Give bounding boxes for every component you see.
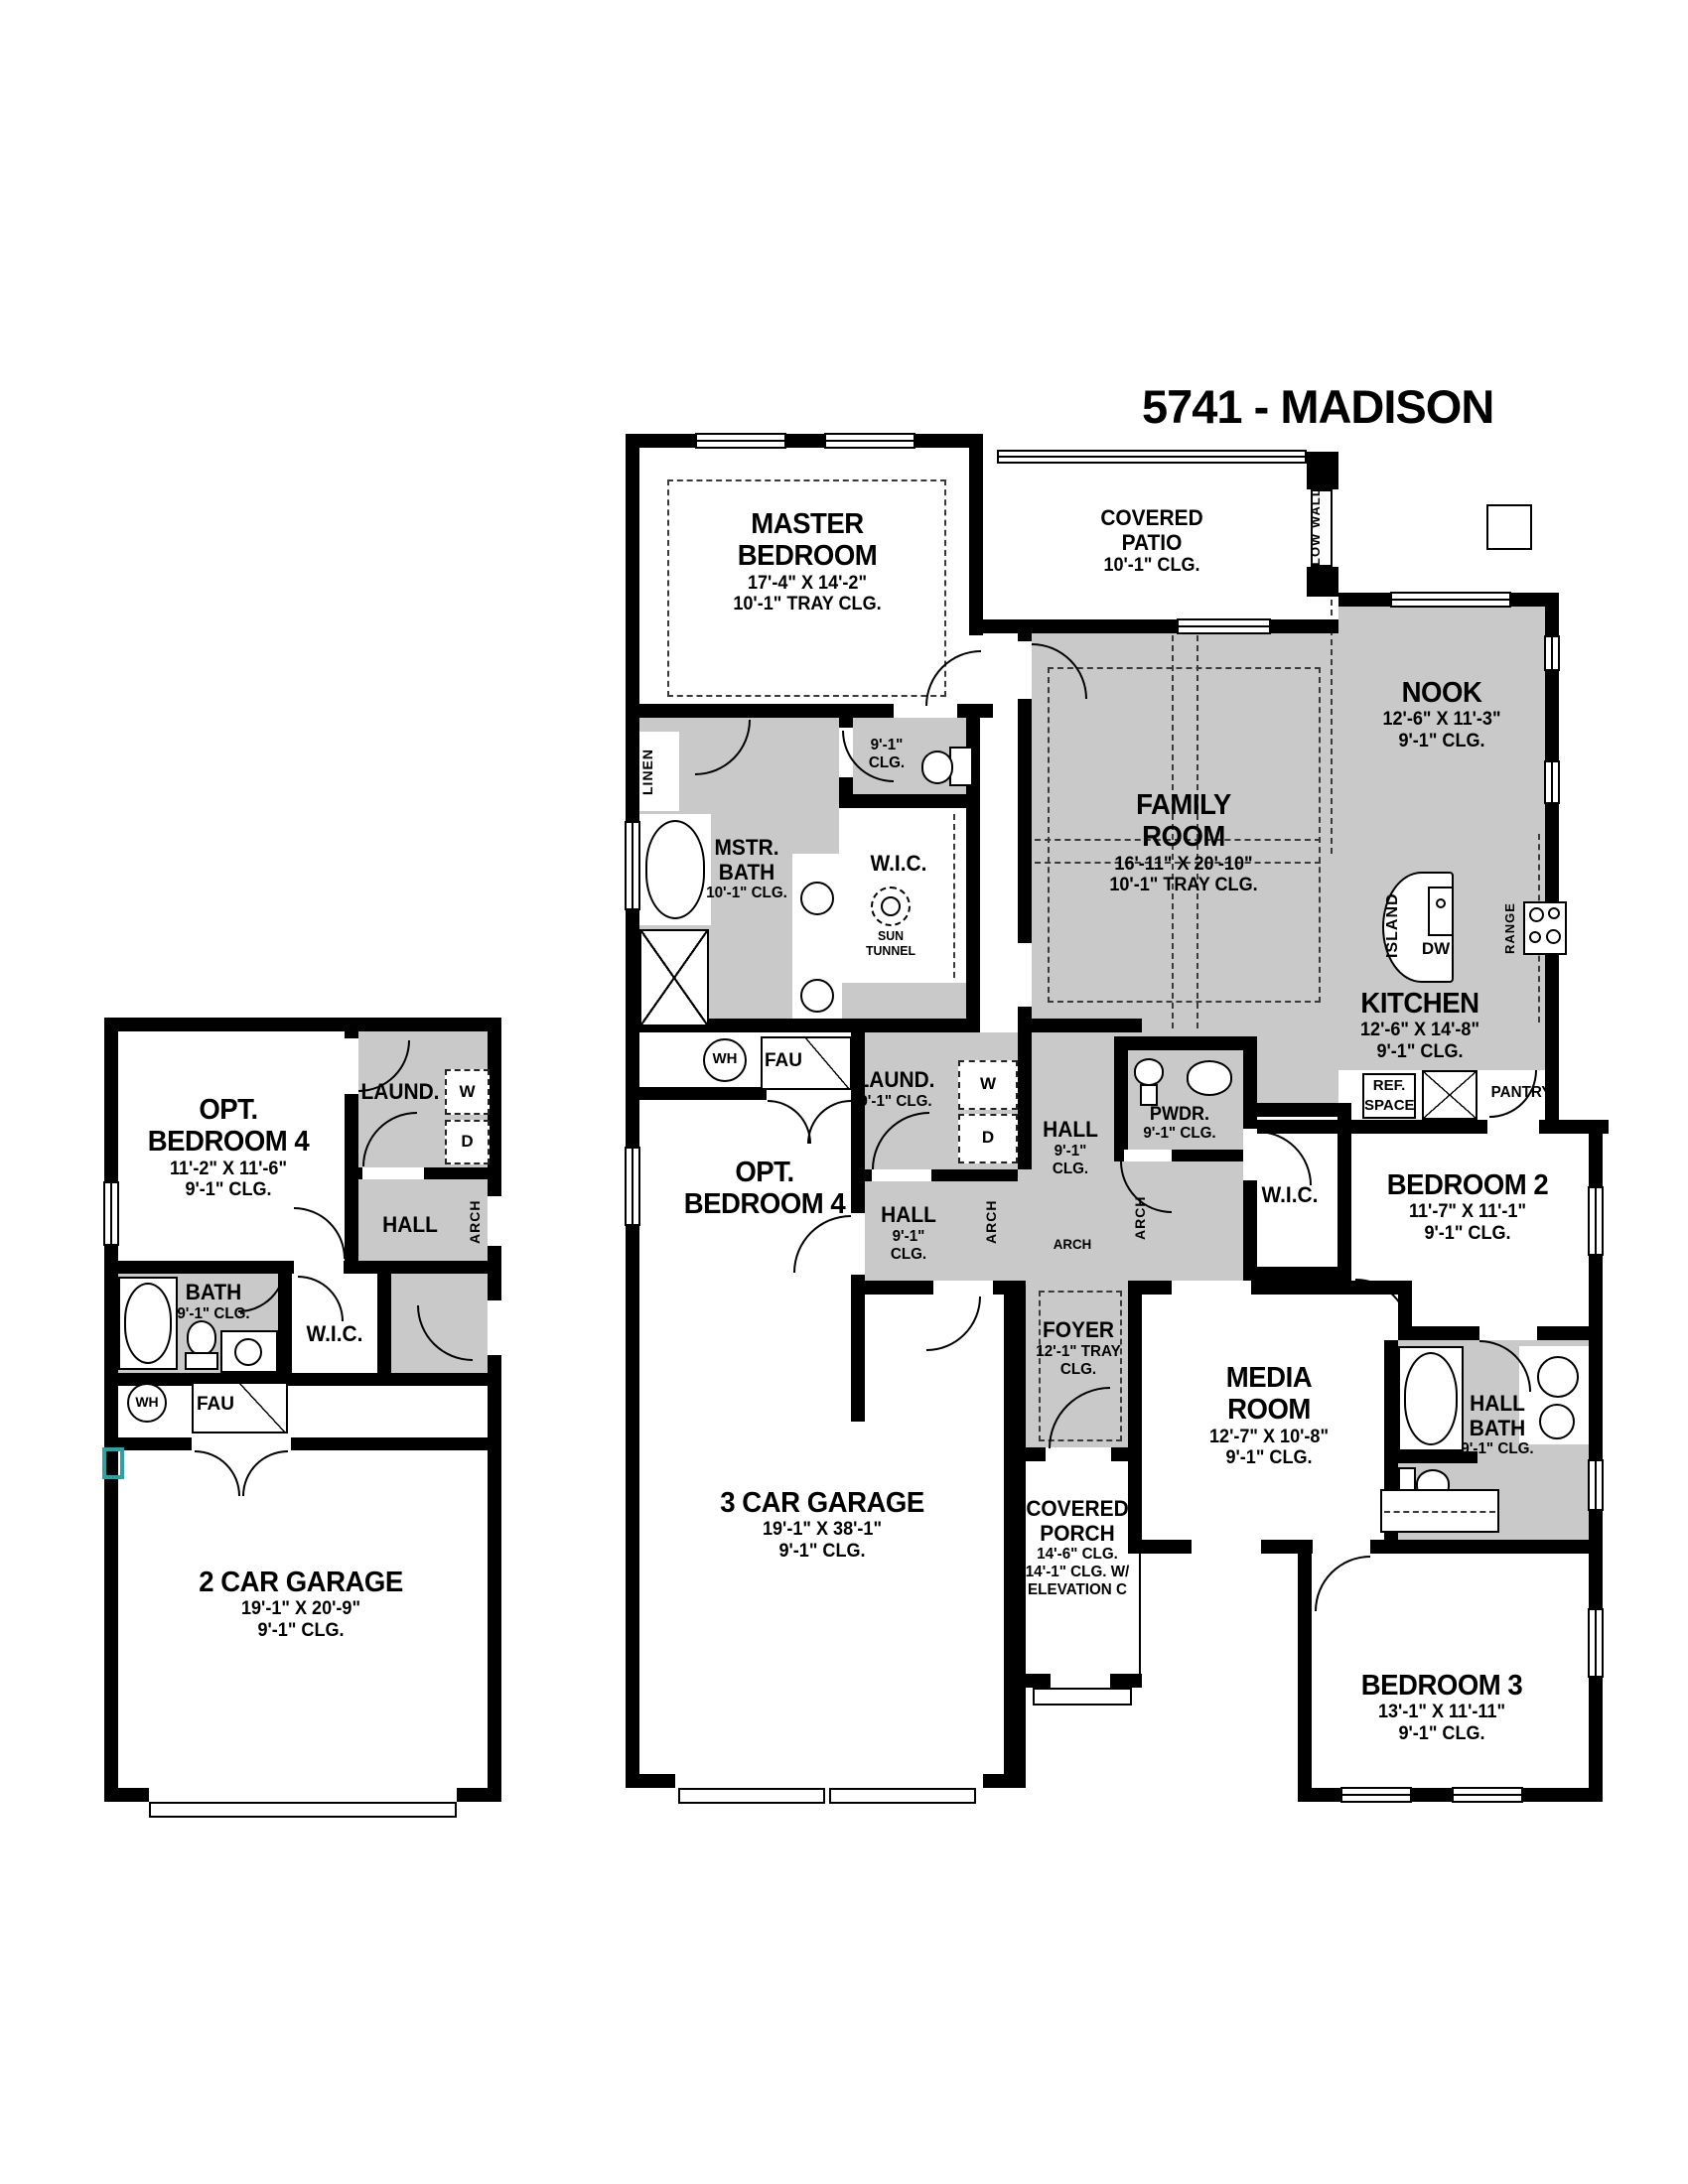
linen-label: LINEN — [639, 740, 655, 805]
door-arc — [195, 1450, 240, 1496]
window — [1588, 1608, 1604, 1678]
sink — [1537, 1356, 1579, 1398]
arch-opening — [488, 1196, 501, 1246]
door-arc — [793, 1215, 851, 1273]
wall — [1298, 1554, 1312, 1802]
pwdr-sink — [1187, 1060, 1232, 1096]
wall — [983, 619, 1338, 633]
wall — [104, 1373, 501, 1386]
bedroom2-label: BEDROOM 2 11'-7" X 11'-1"9'-1" CLG. — [1387, 1169, 1549, 1244]
wall — [104, 1018, 501, 1031]
wall — [626, 1087, 767, 1100]
door-opening — [1313, 1540, 1370, 1554]
garage-door-panel — [149, 1802, 457, 1818]
burner — [1548, 907, 1560, 919]
opt-bedroom4-label: OPT.BEDROOM 4 — [684, 1157, 846, 1221]
door-opening — [294, 1261, 344, 1274]
island-sink — [1428, 887, 1454, 936]
burner — [1546, 929, 1561, 944]
bedroom3-label: BEDROOM 3 13'-1" X 11'-11"9'-1" CLG. — [1361, 1670, 1523, 1744]
wall — [104, 1437, 501, 1450]
closet-shelf-line — [1384, 1511, 1495, 1513]
sun-tunnel-icon — [881, 896, 901, 916]
washer-label: W — [958, 1074, 1018, 1094]
left-wic-label: W.I.C. — [307, 1322, 363, 1347]
door-arc — [807, 1100, 851, 1144]
arch-label: ARCH — [1132, 1189, 1148, 1247]
door-opening — [1479, 1326, 1537, 1340]
window — [103, 1181, 119, 1246]
door-opening — [894, 704, 957, 718]
wall — [626, 434, 983, 448]
door-opening — [851, 1213, 865, 1275]
window — [625, 821, 640, 910]
door-opening — [362, 1167, 424, 1179]
garage2-label: 2 CAR GARAGE 19'-1" X 20'-9"9'-1" CLG. — [199, 1567, 403, 1641]
window — [1544, 635, 1560, 671]
window — [695, 433, 786, 449]
teal-marker — [102, 1447, 124, 1479]
covered-porch-label: COVEREDPORCH 14'-6" CLG.14'-1" CLG. W/EL… — [1026, 1497, 1130, 1599]
window — [1544, 760, 1560, 804]
burner — [1529, 931, 1541, 943]
kitchen-cabinet — [1422, 1070, 1477, 1120]
wall — [1114, 1050, 1128, 1150]
burner — [1529, 907, 1544, 922]
window — [824, 433, 915, 449]
kitchen-label: KITCHEN 12'-6" X 14'-8"9'-1" CLG. — [1360, 988, 1479, 1062]
wall — [626, 434, 639, 1788]
window — [1390, 592, 1511, 608]
media-room-label: MEDIAROOM 12'-7" X 10'-8"9'-1" CLG. — [1209, 1362, 1329, 1468]
range-label: RANGE — [1502, 901, 1517, 955]
hall-bath-label: HALLBATH 9'-1" CLG. — [1461, 1392, 1533, 1458]
porch-step — [1033, 1688, 1132, 1706]
wall — [488, 1018, 501, 1802]
patio-open-edge — [997, 450, 1307, 464]
door-opening — [933, 1281, 993, 1295]
wall — [104, 1018, 118, 1802]
door-arc — [926, 1297, 981, 1351]
wall — [969, 434, 983, 635]
foyer-label: FOYER12'-1" TRAYCLG. — [1036, 1318, 1120, 1378]
left-laundry-label: LAUND. — [361, 1080, 440, 1105]
pantry-label: PANTRY — [1491, 1084, 1552, 1102]
garage-door-panel — [829, 1788, 976, 1804]
door-opening — [1018, 641, 1032, 699]
door-arc — [294, 1207, 346, 1259]
pwdr-toilet-bowl — [1134, 1058, 1164, 1086]
closet-shelf-line — [953, 814, 955, 978]
wall — [1004, 1281, 1026, 1788]
low-wall-label: LOW WALL — [1308, 494, 1323, 566]
patio-post — [1307, 567, 1338, 597]
window — [1340, 1787, 1412, 1803]
sink — [800, 882, 834, 915]
opening — [980, 1019, 1018, 1032]
sink — [800, 979, 834, 1013]
wh-label: WH — [703, 1050, 747, 1067]
master-tub — [645, 820, 705, 919]
family-room-label: FAMILYROOM 16'-11" X 20'-10"10'-1" TRAY … — [1109, 789, 1257, 895]
door-opening — [192, 1437, 291, 1450]
fau-label: FAU — [192, 1394, 239, 1416]
patio-post — [1307, 452, 1338, 489]
door-opening — [345, 1038, 358, 1094]
sun-tunnel-label: SUNTUNNEL — [866, 929, 915, 958]
laundry-label: LAUND.9'-1" CLG. — [857, 1068, 935, 1111]
arch-label: ARCH — [467, 1194, 483, 1249]
washer-label: W — [445, 1082, 490, 1102]
bed2-wic-label: W.I.C. — [1262, 1183, 1319, 1208]
left-opt-bedroom4-label: OPT.BEDROOM 4 11'-2" X 11'-6"9'-1" CLG. — [148, 1094, 310, 1200]
nook-boundary-line — [1331, 600, 1333, 854]
opening — [1051, 1674, 1110, 1688]
master-wc-ceiling-label: 9'-1"CLG. — [869, 737, 905, 772]
garage-door-opening — [675, 1774, 983, 1788]
door-opening — [1487, 1120, 1539, 1134]
wall — [377, 1274, 391, 1373]
wh-label: WH — [127, 1394, 167, 1410]
wall — [278, 1274, 292, 1373]
column — [1486, 504, 1532, 550]
door-opening — [872, 1169, 931, 1181]
window — [625, 1147, 640, 1226]
fau-label: FAU — [761, 1050, 806, 1072]
garage-door-opening — [149, 1788, 457, 1802]
garage3-label: 3 CAR GARAGE 19'-1" X 38'-1"9'-1" CLG. — [720, 1487, 924, 1562]
wall — [1243, 1103, 1351, 1117]
toilet-bowl — [921, 751, 953, 784]
door-opening — [488, 1300, 501, 1355]
hall-east-label: HALL9'-1"CLG. — [1043, 1118, 1098, 1177]
arch-label: ARCH — [983, 1194, 999, 1249]
door-arc — [768, 1100, 811, 1144]
wall — [1114, 1036, 1257, 1050]
wall — [1243, 1267, 1351, 1281]
faucet — [1436, 898, 1446, 908]
window — [1588, 1186, 1604, 1256]
door-arc — [1315, 1556, 1370, 1611]
sliding-door — [1177, 618, 1271, 634]
sink — [1539, 1404, 1575, 1439]
porch-edge — [1139, 1461, 1141, 1674]
window — [1452, 1787, 1523, 1803]
island-label: ISLAND — [1384, 879, 1402, 973]
arch-label: ARCH — [1054, 1237, 1091, 1253]
master-shower — [639, 929, 709, 1026]
cased-opening — [1172, 1281, 1251, 1295]
plan-title: 5741 - MADISON — [1142, 379, 1493, 434]
floorplan-sheet: 5741 - MADISON — [0, 0, 1688, 2184]
hall-center-label: HALL9'-1"CLG. — [881, 1203, 936, 1263]
master-bedroom-label: MASTERBEDROOM 17'-4" X 14'-2"10'-1" TRAY… — [733, 508, 881, 614]
opening — [1192, 1540, 1261, 1554]
ref-space-label: REF.SPACE — [1364, 1076, 1414, 1115]
pwdr-toilet-base — [1140, 1084, 1158, 1106]
left-bath-label: BATH9'-1" CLG. — [177, 1281, 249, 1323]
toilet-tank — [185, 1352, 218, 1370]
bath-tub — [124, 1283, 172, 1364]
toilet-bowl — [187, 1320, 216, 1356]
left-hall-label: HALL — [382, 1213, 438, 1238]
covered-patio-label: COVEREDPATIO 10'-1" CLG. — [1100, 506, 1202, 577]
dw-label: DW — [1416, 939, 1456, 959]
master-wic-label: W.I.C. — [871, 852, 927, 877]
nook-label: NOOK 12'-6" X 11'-3"9'-1" CLG. — [1382, 677, 1500, 751]
sink — [234, 1338, 262, 1366]
dryer-label: D — [958, 1128, 1018, 1148]
front-door-opening — [1046, 1447, 1111, 1461]
mstr-bath-label: MSTR.BATH 10'-1" CLG. — [706, 836, 787, 902]
wall — [1545, 593, 1559, 1134]
garage-door-panel — [678, 1788, 825, 1804]
door-opening — [1124, 1150, 1172, 1161]
master-corridor — [980, 619, 1018, 1032]
door-arc — [242, 1450, 288, 1496]
door-arc — [298, 1276, 344, 1321]
wall — [1018, 1032, 1032, 1169]
wall — [1243, 1120, 1609, 1134]
wall — [839, 794, 966, 808]
dryer-label: D — [445, 1132, 490, 1152]
wall — [1337, 1117, 1351, 1281]
window — [1588, 1459, 1604, 1511]
pwdr-label: PWDR.9'-1" CLG. — [1143, 1104, 1215, 1143]
door-opening — [1243, 1129, 1257, 1180]
opening — [1018, 943, 1032, 1007]
hall-bath-tub — [1404, 1352, 1458, 1445]
